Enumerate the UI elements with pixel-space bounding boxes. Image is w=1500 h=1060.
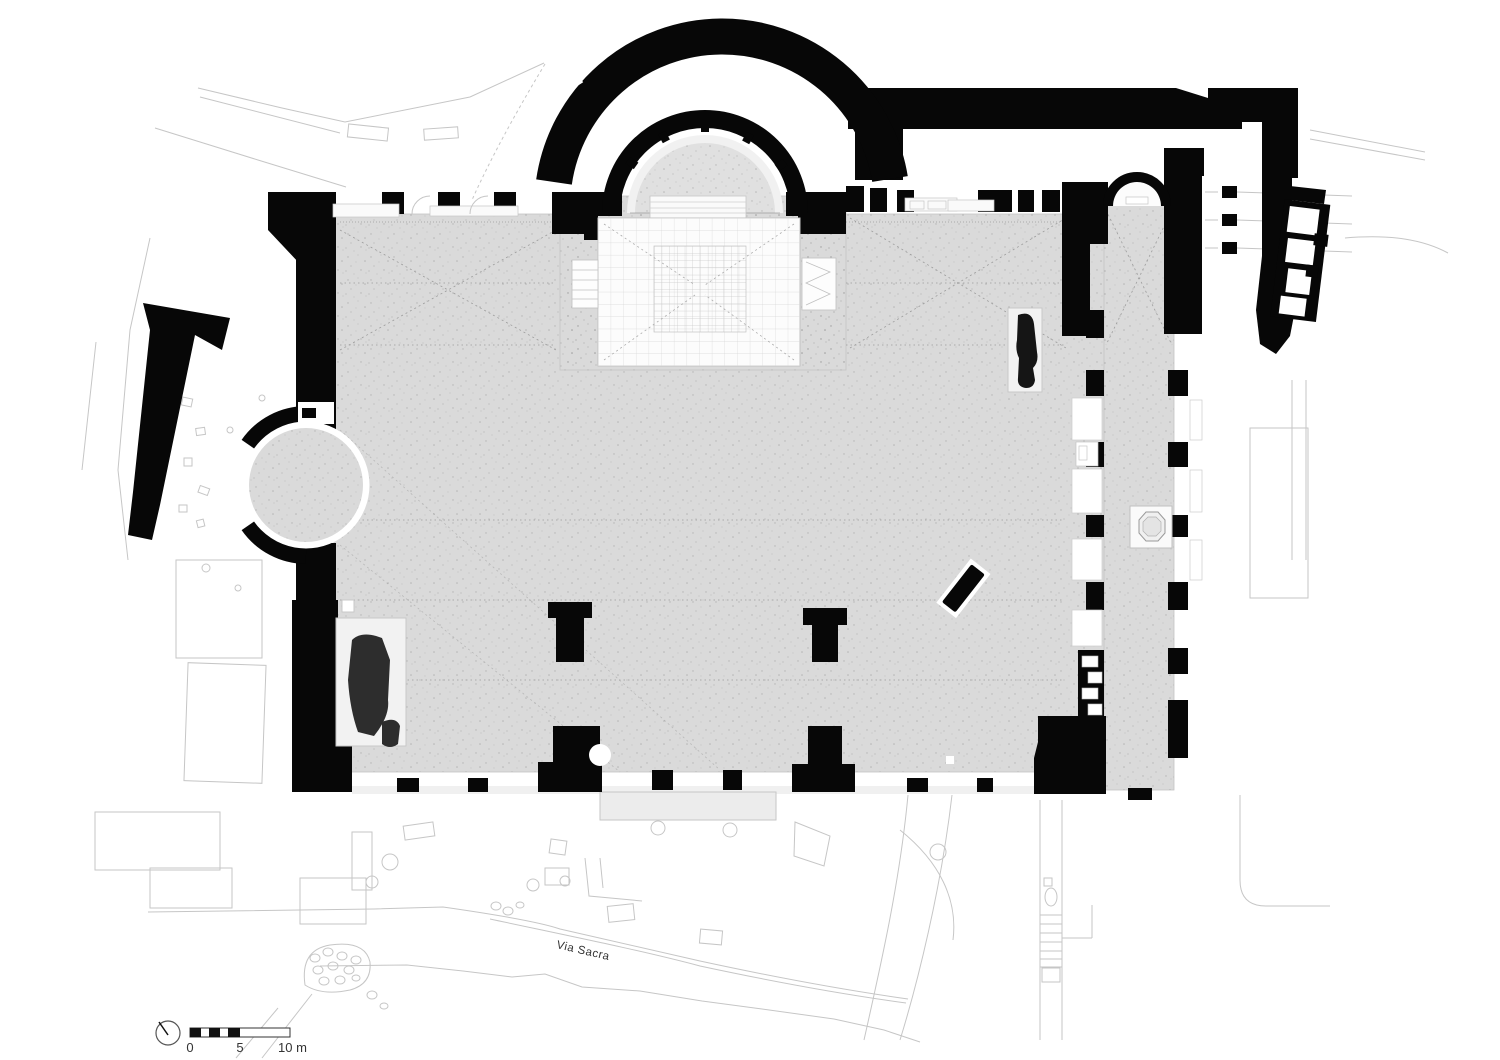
context-roads-southeast xyxy=(864,795,952,1040)
north-portico-bar xyxy=(848,88,1298,122)
context-roads-northwest xyxy=(155,63,544,187)
context-rounded-court xyxy=(1240,795,1330,906)
west-wall-upper xyxy=(296,230,336,430)
fence-pier xyxy=(1222,214,1237,226)
floor-plan: Via Sacra 0 5 10 m xyxy=(0,0,1500,1060)
niche-remnant xyxy=(302,408,316,418)
south-porch xyxy=(352,786,1052,820)
context-structure-east xyxy=(1250,428,1308,598)
north-portico-lip xyxy=(848,120,1242,129)
context-misc-south xyxy=(366,821,954,945)
colonnade-table xyxy=(1076,442,1098,466)
fence-pier xyxy=(1222,242,1237,254)
scale-bar-segments xyxy=(190,1028,240,1037)
northeast-wall-pier xyxy=(846,186,864,212)
context-structure xyxy=(424,127,459,140)
east-annex-wall xyxy=(1164,172,1202,334)
fence-pier xyxy=(1222,186,1237,198)
west-diagonal-ramp xyxy=(128,303,230,540)
context-rock-cluster xyxy=(304,944,388,1009)
northeast-wall-pier xyxy=(870,188,887,212)
east-annex-bridge xyxy=(1164,148,1204,176)
column-base-remains xyxy=(1008,308,1042,392)
scale-label-5: 5 xyxy=(236,1040,243,1055)
scale-label-0: 0 xyxy=(186,1040,193,1055)
corner-apse-table xyxy=(1126,197,1148,204)
north-arrow-icon xyxy=(156,1021,180,1045)
scale-label-10m: 10 m xyxy=(278,1040,307,1055)
apse-room-west-jamb xyxy=(552,192,598,234)
arc-break xyxy=(548,47,583,90)
west-apse xyxy=(246,425,366,545)
southwest-corner-wall xyxy=(292,742,352,792)
stair-remains-blob-small xyxy=(382,720,400,747)
southeast-corner-mass xyxy=(1034,716,1106,794)
northeast-wall-pier xyxy=(1042,190,1060,212)
coffered-room xyxy=(572,196,836,366)
context-excavation-edge xyxy=(236,965,920,1058)
scale-bar: 0 5 10 m xyxy=(186,1028,307,1055)
room-center-grid xyxy=(654,246,746,332)
legend: 0 5 10 m xyxy=(156,1021,307,1055)
west-stair xyxy=(572,260,598,308)
floor-plan-page: Via Sacra 0 5 10 m xyxy=(0,0,1500,1060)
northeast-wall-pier xyxy=(1018,190,1034,212)
stair-remains-room xyxy=(336,600,406,747)
west-wall-lower xyxy=(292,600,338,750)
small-post xyxy=(342,600,354,612)
basin-inner xyxy=(1143,517,1161,536)
west-apse-speckle xyxy=(249,428,363,542)
via-sacra-road xyxy=(148,907,908,1003)
basin xyxy=(1130,506,1172,548)
apse-steps xyxy=(650,196,746,218)
context-structure xyxy=(347,124,388,141)
east-stair xyxy=(802,258,836,310)
pier-niche xyxy=(589,744,611,766)
context-dotted-slope xyxy=(472,64,545,200)
context-stair-strip xyxy=(1040,800,1092,1040)
floor-marker xyxy=(946,756,954,764)
